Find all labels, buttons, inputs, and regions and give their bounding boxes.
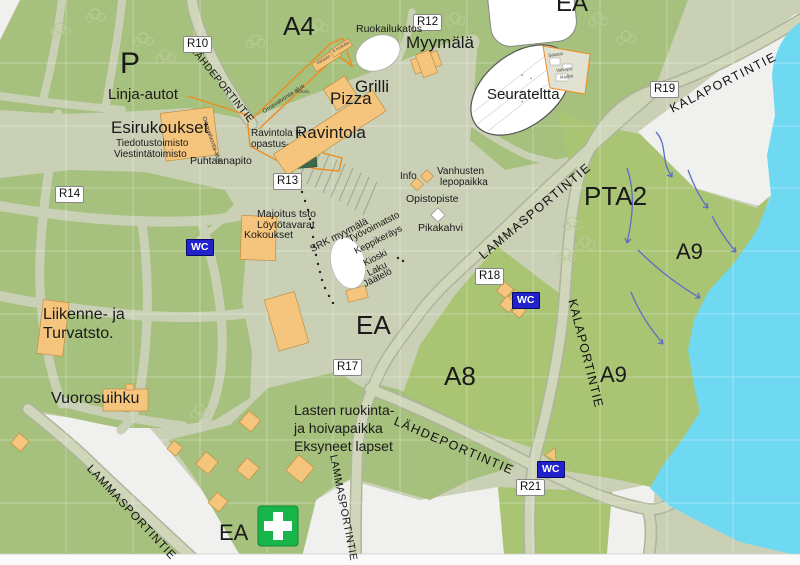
map-canvas [0, 0, 800, 565]
gate-r18: R18 [475, 268, 504, 285]
gate-r13: R13 [273, 173, 302, 190]
gate-r10: R10 [183, 36, 212, 53]
wc-badge-center: WC [512, 292, 540, 309]
gate-r19: R19 [650, 81, 679, 98]
first-aid-icon [258, 506, 298, 546]
gate-r21: R21 [516, 479, 545, 496]
gate-r12: R12 [413, 14, 442, 31]
map-margin [0, 554, 800, 565]
tent-service-pocket [543, 46, 590, 94]
event-area-map: A4 P EA EA EA PTA2 A8 A9 A9 LÄHDEPORTINT… [0, 0, 800, 565]
wc-badge-south: WC [537, 461, 565, 478]
wc-badge-west: WC [186, 239, 214, 256]
gate-r14: R14 [55, 186, 84, 203]
gate-r17: R17 [333, 359, 362, 376]
